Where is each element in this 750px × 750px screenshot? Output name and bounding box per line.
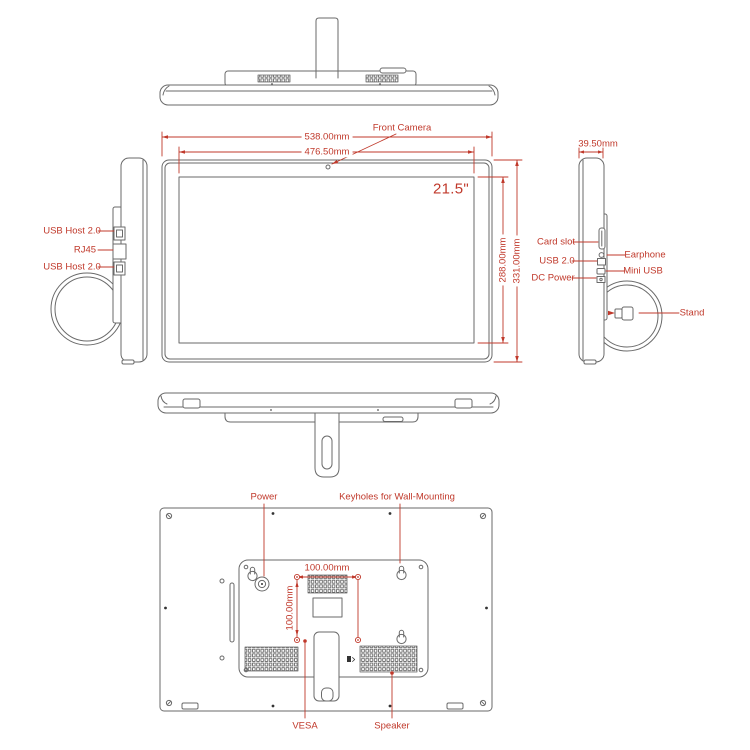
back-view <box>160 508 492 711</box>
keyholes-label: Keyholes for Wall-Mounting <box>339 492 455 502</box>
card-slot-label: Card slot <box>537 237 575 247</box>
mini-usb-label: Mini USB <box>623 266 663 276</box>
dim-vesa-height: 100.00mm <box>285 583 295 634</box>
speaker-grille-right <box>360 646 417 672</box>
usb20-label: USB 2.0 <box>539 256 574 266</box>
earphone-label: Earphone <box>624 250 665 260</box>
power-label: Power <box>251 492 278 502</box>
dc-power-label: DC Power <box>531 273 574 283</box>
speaker-grille-left <box>245 647 298 671</box>
dim-screen-height: 288.00mm <box>498 235 508 286</box>
front-camera-label: Front Camera <box>373 123 432 133</box>
dim-screen-width: 476.50mm <box>302 147 353 157</box>
line-art <box>0 0 750 750</box>
power-button <box>255 577 269 591</box>
monitor-spec-drawing: Front Camera 538.00mm 476.50mm 21.5" 288… <box>0 0 750 750</box>
dim-depth: 39.50mm <box>578 139 618 149</box>
dim-outer-width: 538.00mm <box>302 132 353 142</box>
usb-host-top-label: USB Host 2.0 <box>43 226 101 236</box>
arrowheads <box>162 135 615 636</box>
rj45-label: RJ45 <box>74 245 96 255</box>
usb-host-bottom-label: USB Host 2.0 <box>43 262 101 272</box>
dim-outer-height: 331.00mm <box>512 236 522 287</box>
bottom-view <box>158 393 499 477</box>
top-view <box>160 18 498 105</box>
speaker-label: Speaker <box>374 721 409 731</box>
stand-label: Stand <box>680 308 705 318</box>
dim-vesa-width: 100.00mm <box>305 563 350 573</box>
screen-size-label: 21.5" <box>433 182 469 197</box>
vesa-label: VESA <box>292 721 317 731</box>
